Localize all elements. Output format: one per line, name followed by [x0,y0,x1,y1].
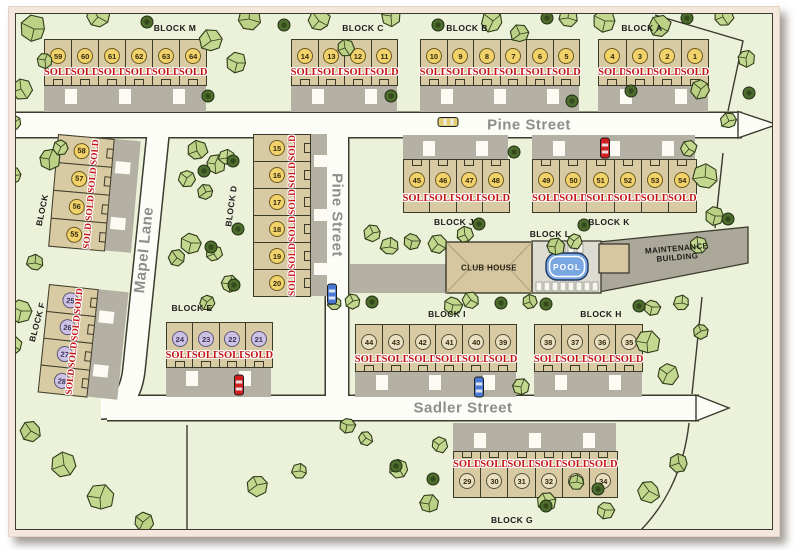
map-frame: 59SOLD60SOLD61SOLD62SOLD63SOLD64SOLD14SO… [8,6,780,537]
block-label-G: BLOCK G [491,515,533,525]
block-label-B: BLOCK B [446,23,488,33]
block-label-F: BLOCK F [27,301,47,343]
block-label-D: BLOCK D [223,185,239,228]
block-label-N: BLOCK [34,193,50,227]
block-label-E: BLOCK E [171,303,212,313]
sadler-street-label: Sadler Street [413,400,512,417]
pool-label: POOL [553,262,581,272]
block-label-C: BLOCK C [342,23,384,33]
block-label-L: BLOCK L [530,229,571,239]
labels-layer: Pine Street Pine Street Mapel Lane Sadle… [15,13,773,530]
club-house-label: CLUB HOUSE [461,264,517,273]
block-label-K: BLOCK K [588,217,630,227]
block-label-A: BLOCK A [621,23,662,33]
mapel-lane-label: Mapel Lane [131,206,157,294]
block-label-J: BLOCK J [434,217,474,227]
block-label-I: BLOCK I [428,309,466,319]
block-label-H: BLOCK H [580,309,622,319]
block-label-M: BLOCK M [154,23,196,33]
site-plan: 59SOLD60SOLD61SOLD62SOLD63SOLD64SOLD14SO… [0,0,796,550]
map-area: 59SOLD60SOLD61SOLD62SOLD63SOLD64SOLD14SO… [15,13,773,530]
pine-street-vertical-label: Pine Street [329,173,346,257]
pine-street-label: Pine Street [487,117,571,134]
maintenance-building-label: MAINTENANCE BUILDING [645,241,710,264]
